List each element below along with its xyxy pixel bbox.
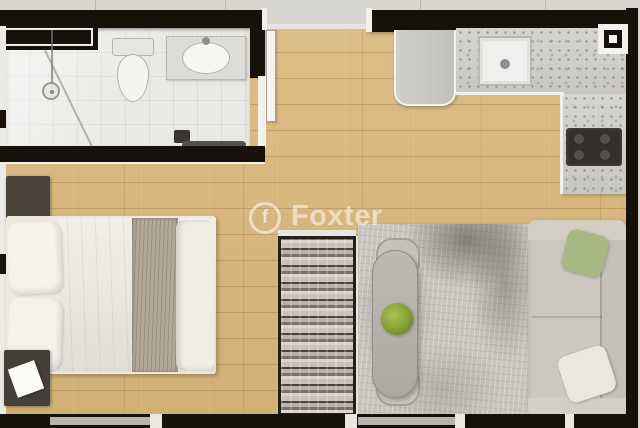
bedroom-window [50,417,152,425]
plant-bowl [381,303,413,335]
burner-icon [574,150,584,160]
counter-edge [456,92,564,95]
wardrobe [278,236,356,416]
cooktop [566,128,622,166]
vanity-faucet [202,37,210,45]
wall-pier [0,110,6,128]
bed-foot-roll [176,220,214,370]
refrigerator [394,30,456,106]
wardrobe-clothes [281,239,353,413]
entry-door-leaf [266,30,276,122]
shower-hose [51,30,53,84]
wall-joint [455,414,465,428]
foxter-logo-icon: f [249,202,281,234]
burner-icon [574,134,584,144]
entry-threshold [265,24,367,29]
wall-bathroom-bottom [0,146,265,164]
vanity-basin [182,42,230,74]
burner-icon [600,134,610,144]
burner-icon [600,150,610,160]
living-window [358,417,455,425]
entry-door-frame [366,8,372,32]
bathroom-door-opening [258,76,266,148]
wall-joint [345,414,357,428]
entry-opening [265,0,368,26]
bathroom-window [3,28,93,46]
foxter-logo-glyph: f [262,207,268,228]
kitchen-faucet [500,59,510,69]
wall-joint [565,414,574,428]
watermark-brand: Foxter [291,200,383,233]
shower-head [42,82,60,100]
sofa [528,220,626,418]
sofa-seam [532,316,602,318]
corner-window-center [609,35,617,43]
counter-edge [560,94,563,194]
wall-joint [150,414,162,428]
entry-door-frame [262,8,267,30]
bed-runner [132,218,178,372]
wall-right [626,8,638,418]
floor-plan: f Foxter [0,0,640,428]
bed-pillow [7,221,63,295]
